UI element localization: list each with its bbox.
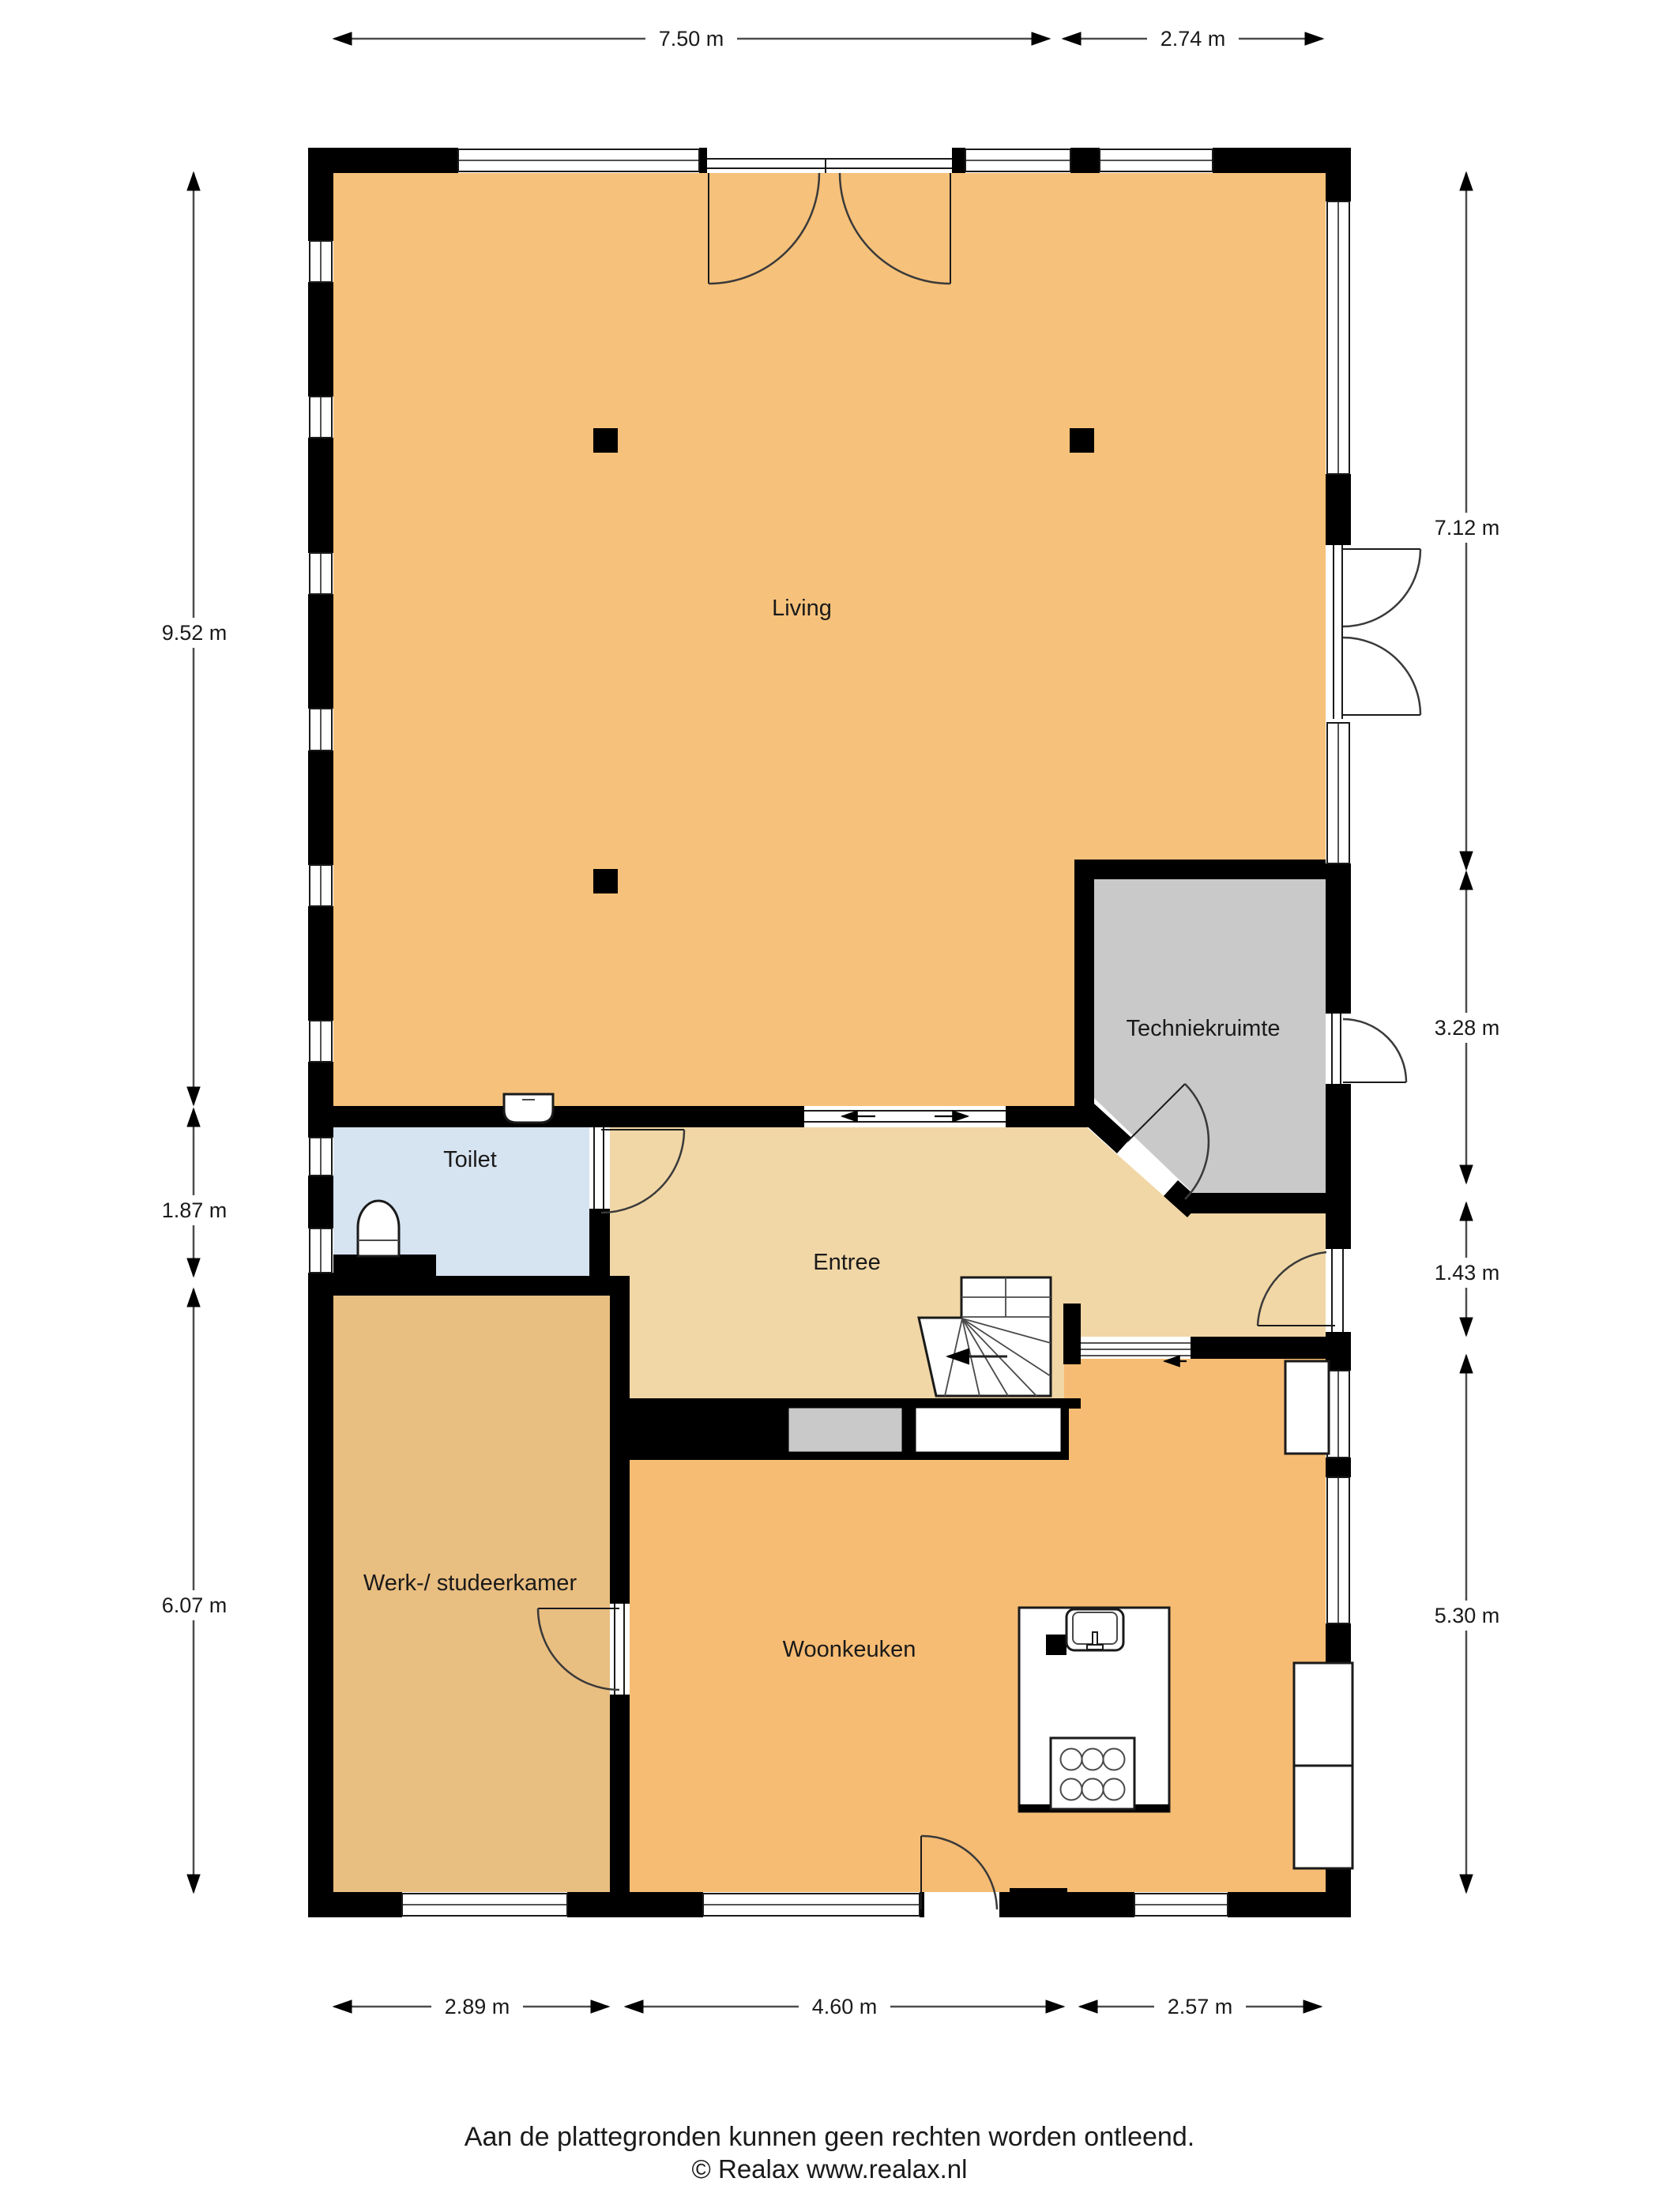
- dim-label: 4.60 m: [812, 1995, 878, 2018]
- dim-left-2: 1.87 m: [148, 1109, 241, 1276]
- appliance-right-1: [1294, 1663, 1352, 1766]
- island-column: [1046, 1635, 1066, 1655]
- window: [965, 149, 1070, 171]
- counter-top-right: [1285, 1361, 1329, 1454]
- column: [1070, 428, 1094, 453]
- cooktop: [1051, 1738, 1134, 1809]
- label-entree: Entree: [813, 1250, 880, 1275]
- window: [310, 709, 332, 750]
- dim-label: 7.50 m: [659, 27, 724, 51]
- window: [1100, 149, 1213, 171]
- cabinet-row: [625, 1406, 1063, 1454]
- window: [1134, 1894, 1228, 1916]
- window: [310, 241, 332, 282]
- passage-living-entree: [804, 1106, 1006, 1127]
- floorplan-canvas: Living Techniekruimte Toilet Entree Werk…: [0, 0, 1659, 2212]
- dim-bottom-3: 2.57 m: [1080, 1992, 1321, 2022]
- kitchen-island: [1019, 1608, 1169, 1812]
- label-werkkamer: Werk-/ studeerkamer: [363, 1571, 577, 1596]
- dim-label: 2.74 m: [1161, 27, 1226, 51]
- label-living: Living: [772, 596, 832, 621]
- dim-label: 9.52 m: [162, 621, 228, 645]
- window: [310, 1138, 332, 1176]
- window: [703, 1894, 920, 1916]
- dim-label: 7.12 m: [1435, 516, 1500, 540]
- dim-label: 5.30 m: [1435, 1604, 1500, 1627]
- window: [310, 553, 332, 594]
- footer-copyright: © Realax www.realax.nl: [692, 2154, 968, 2184]
- dim-bottom-1: 2.89 m: [334, 1992, 608, 2022]
- dim-left-3: 6.07 m: [148, 1289, 241, 1892]
- toilet-bowl: [358, 1201, 399, 1256]
- window: [1327, 1371, 1349, 1458]
- gray-cabinet: [787, 1406, 904, 1454]
- dim-label: 3.28 m: [1435, 1016, 1500, 1040]
- window: [1327, 201, 1349, 474]
- window: [310, 865, 332, 906]
- sink: [1066, 1609, 1123, 1650]
- white-cabinet: [914, 1406, 1063, 1454]
- column: [593, 428, 618, 453]
- floorplan-page: Living Techniekruimte Toilet Entree Werk…: [0, 0, 1659, 2212]
- column: [593, 869, 618, 893]
- dim-label: 1.87 m: [162, 1198, 228, 1222]
- dim-label: 6.07 m: [162, 1593, 228, 1617]
- double-door-living-right: [1326, 545, 1420, 719]
- window: [1327, 1477, 1349, 1623]
- dim-label: 2.89 m: [445, 1995, 510, 2018]
- dim-right-4: 5.30 m: [1420, 1356, 1514, 1892]
- window: [402, 1894, 567, 1916]
- window: [310, 1021, 332, 1062]
- window: [310, 1228, 332, 1273]
- footer: Aan de plattegronden kunnen geen rechten…: [465, 2122, 1194, 2184]
- dim-bottom-2: 4.60 m: [626, 1992, 1063, 2022]
- appliance-right-2: [1294, 1766, 1352, 1868]
- dim-right-2: 3.28 m: [1420, 872, 1514, 1183]
- label-techniekruimte: Techniekruimte: [1126, 1016, 1280, 1041]
- dim-label: 1.43 m: [1435, 1261, 1500, 1285]
- window: [458, 149, 699, 171]
- dim-right-1: 7.12 m: [1420, 173, 1514, 869]
- footer-disclaimer: Aan de plattegronden kunnen geen rechten…: [465, 2122, 1194, 2152]
- dim-top-2: 2.74 m: [1063, 24, 1322, 54]
- label-woonkeuken: Woonkeuken: [783, 1637, 916, 1662]
- railing-partition: [1081, 1340, 1191, 1359]
- dim-label: 2.57 m: [1168, 1995, 1233, 2018]
- window: [1327, 723, 1349, 863]
- dim-top-1: 7.50 m: [334, 24, 1049, 54]
- door-techniekruimte-exterior: [1326, 1014, 1406, 1084]
- dim-left-1: 9.52 m: [148, 173, 241, 1104]
- hatched-cabinet: [625, 1406, 777, 1454]
- washbasin: [504, 1094, 553, 1123]
- dim-right-3: 1.43 m: [1420, 1203, 1514, 1335]
- window: [310, 397, 332, 438]
- label-toilet: Toilet: [443, 1147, 497, 1172]
